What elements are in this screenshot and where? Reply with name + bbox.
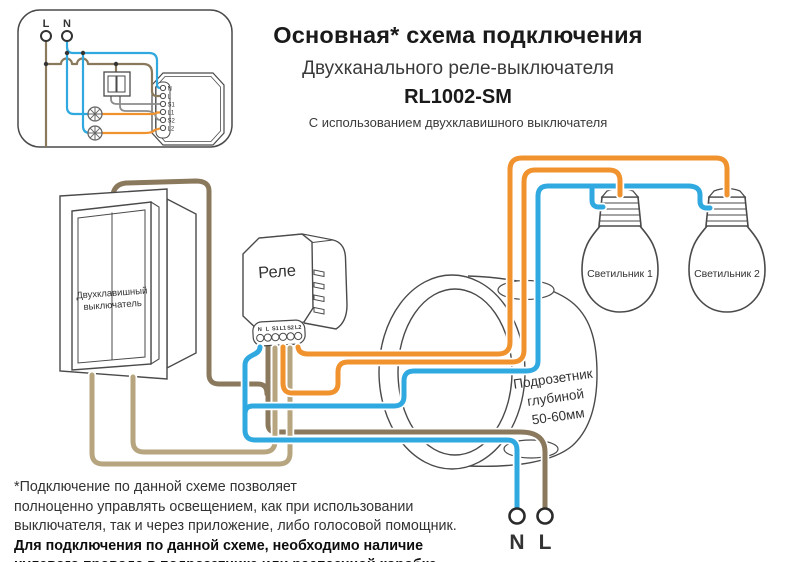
relay-terminal-label: N: [258, 327, 262, 333]
relay-terminal-label: S2: [287, 325, 294, 331]
page-subtitle: Двухканального реле-выключателя: [240, 58, 676, 80]
relay-module: [243, 234, 347, 331]
inset-terminal-label: L1: [168, 111, 175, 117]
mains-line-label: L: [539, 531, 552, 554]
lamp-wires-orange: [283, 158, 727, 393]
title-block: Основная* схема подключения Двухканально…: [240, 22, 676, 130]
footnote-line: *Подключение по данной схеме позволяет: [14, 478, 494, 498]
inset-line-terminal: [41, 31, 51, 41]
title-note: С использованием двухклавишного выключат…: [240, 115, 676, 130]
relay-front-face: [243, 234, 313, 331]
relay-terminal-label: L1: [280, 326, 287, 332]
relay-terminal-label: L2: [295, 325, 302, 331]
inset-terminal-label: N: [168, 87, 172, 93]
wiring-diagram-page: L N N L S1 L1 S2: [0, 0, 800, 562]
model-name: RL1002-SM: [240, 86, 676, 109]
footnote-bold-line: нулевого провода в подрозетнике или расп…: [14, 556, 494, 562]
switch-wall-box: [167, 199, 196, 368]
mains-neutral-terminal: [510, 509, 525, 524]
mains-terminals: N L: [509, 509, 552, 555]
inset-line-label: L: [43, 18, 50, 30]
lamp-1-label: Светильник 1: [587, 268, 653, 280]
relay-label: Реле: [258, 262, 297, 283]
page-title: Основная* схема подключения: [240, 22, 676, 49]
relay-terminal-strip: N L S1 L1 S2 L2: [252, 320, 305, 347]
inset-switch-symbol: [104, 72, 130, 96]
inset-neutral-terminal: [62, 31, 72, 41]
inset-diagram: L N N L S1 L1 S2: [18, 10, 232, 147]
inset-terminal-label: S1: [168, 103, 176, 109]
footnote-line: выключателя, так и через приложение, либ…: [14, 517, 494, 537]
mains-line-terminal: [538, 509, 553, 524]
inset-neutral-label: N: [63, 18, 71, 30]
footnote-bold-line: Для подключения по данной схеме, необход…: [14, 537, 494, 557]
wall-switch: [60, 189, 196, 379]
inset-terminal-label: S2: [168, 119, 176, 125]
footnote: *Подключение по данной схеме позволяет п…: [14, 478, 494, 562]
lamp-2-label: Светильник 2: [694, 268, 760, 280]
relay-terminal-label: S1: [272, 326, 279, 332]
lamp-1-cap: [599, 197, 641, 226]
inset-terminal-label: L2: [168, 127, 175, 133]
mains-neutral-label: N: [509, 531, 524, 554]
footnote-line: полноценно управлять освещением, как при…: [14, 498, 494, 518]
